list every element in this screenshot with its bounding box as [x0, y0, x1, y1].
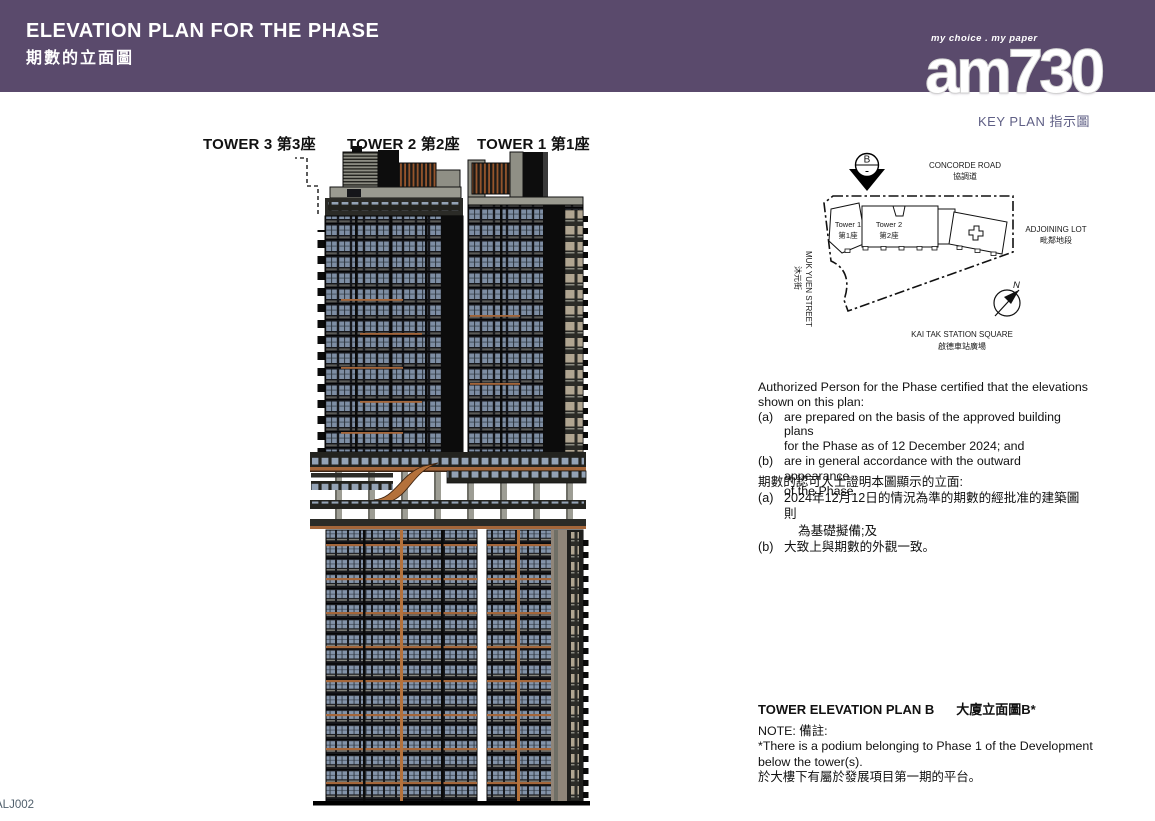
- key-plan-tower2-label-zh: 第2座: [879, 230, 899, 240]
- document-code: ALJ002: [0, 799, 34, 811]
- key-plan-caption: KEY PLAN 指示圖: [978, 111, 1090, 130]
- muk-yuen-street-label-zh: 沐元街: [793, 266, 803, 290]
- cert-en-line: shown on this plan:: [758, 395, 1088, 410]
- section-marker-b: B: [849, 154, 885, 192]
- key-plan-drawing: B Tower 1 第1座 Tower 2 第2座 CONCORDE: [780, 148, 1100, 363]
- logo-brand: am730: [925, 44, 1125, 102]
- cert-en-line: for the Phase as of 12 December 2024; an…: [784, 439, 1088, 454]
- tower2-upper-body: [318, 216, 464, 452]
- cert-en-line: are prepared on the basis of the approve…: [784, 410, 1088, 440]
- certification-text-zh: 期數的認可人士證明本圖顯示的立面: (a) 2024年12月12日的情況為準的期…: [758, 474, 1088, 555]
- adjoining-lot-label-en: ADJOINING LOT: [1025, 225, 1086, 234]
- plan-title-zh: 大廈立面圖B*: [956, 702, 1035, 717]
- plan-title-en: TOWER ELEVATION PLAN B: [758, 702, 934, 717]
- am730-logo: my choice . my paper am730: [925, 33, 1125, 102]
- tower2-roof: [325, 146, 463, 216]
- muk-yuen-street-label-en: MUK YUEN STREET: [804, 251, 813, 327]
- plan-title: TOWER ELEVATION PLAN B大廈立面圖B*: [758, 699, 1155, 718]
- tower-elevation-drawing: [295, 144, 655, 820]
- key-plan-tower1-label-en: Tower 1: [835, 220, 861, 229]
- ground-line: [313, 801, 590, 806]
- cert-zh-marker-b: (b): [758, 539, 784, 555]
- note-line-zh: 於大樓下有屬於發展項目第一期的平台。: [758, 770, 1098, 785]
- cert-en-marker-a: (a): [758, 410, 784, 454]
- kai-tak-square-label-en: KAI TAK STATION SQUARE: [911, 330, 1013, 339]
- cert-zh-line: 期數的認可人士證明本圖顯示的立面:: [758, 474, 1088, 490]
- page: ELEVATION PLAN FOR THE PHASE 期數的立面圖 my c…: [0, 0, 1155, 821]
- tower1-upper-body: [468, 205, 588, 452]
- key-plan-tower2-label-en: Tower 2: [876, 220, 902, 229]
- adjoining-lot-label-zh: 毗鄰地段: [1040, 235, 1072, 245]
- page-title-en: ELEVATION PLAN FOR THE PHASE: [26, 20, 379, 43]
- cert-zh-line: 為基礎擬備;及: [784, 523, 1088, 539]
- note-label: NOTE: 備註:: [758, 724, 1098, 739]
- concorde-road-label-en: CONCORDE ROAD: [929, 161, 1001, 170]
- note-line-en1: *There is a podium belonging to Phase 1 …: [758, 739, 1098, 754]
- tower3-leader-line: [295, 158, 318, 214]
- north-arrow-n: N: [1013, 280, 1020, 291]
- cert-zh-line: 大致上與期數的外觀一致。: [784, 539, 1088, 555]
- note-block: NOTE: 備註: *There is a podium belonging t…: [758, 724, 1098, 786]
- page-title-zh: 期數的立面圖: [26, 44, 134, 68]
- key-plan-tower1-label-zh: 第1座: [838, 230, 858, 240]
- north-arrow-icon: N: [994, 280, 1020, 316]
- concorde-road-label-zh: 協調道: [953, 171, 977, 181]
- cert-en-line: Authorized Person for the Phase certifie…: [758, 380, 1088, 395]
- tower1-lower-body: [487, 530, 589, 802]
- kai-tak-square-label-zh: 啟德車站廣場: [938, 341, 986, 351]
- cert-zh-marker-a: (a): [758, 490, 784, 539]
- section-marker-letter: B: [864, 155, 871, 166]
- note-line-en2: below the tower(s).: [758, 755, 1098, 770]
- key-plan-buildings: [829, 203, 1007, 256]
- podium-transfer-zone: [310, 452, 586, 529]
- tower1-roof: [468, 152, 583, 205]
- cert-zh-line: 2024年12月12日的情況為準的期數的經批准的建築圖則: [784, 490, 1088, 522]
- tower2-lower-body: [326, 530, 477, 802]
